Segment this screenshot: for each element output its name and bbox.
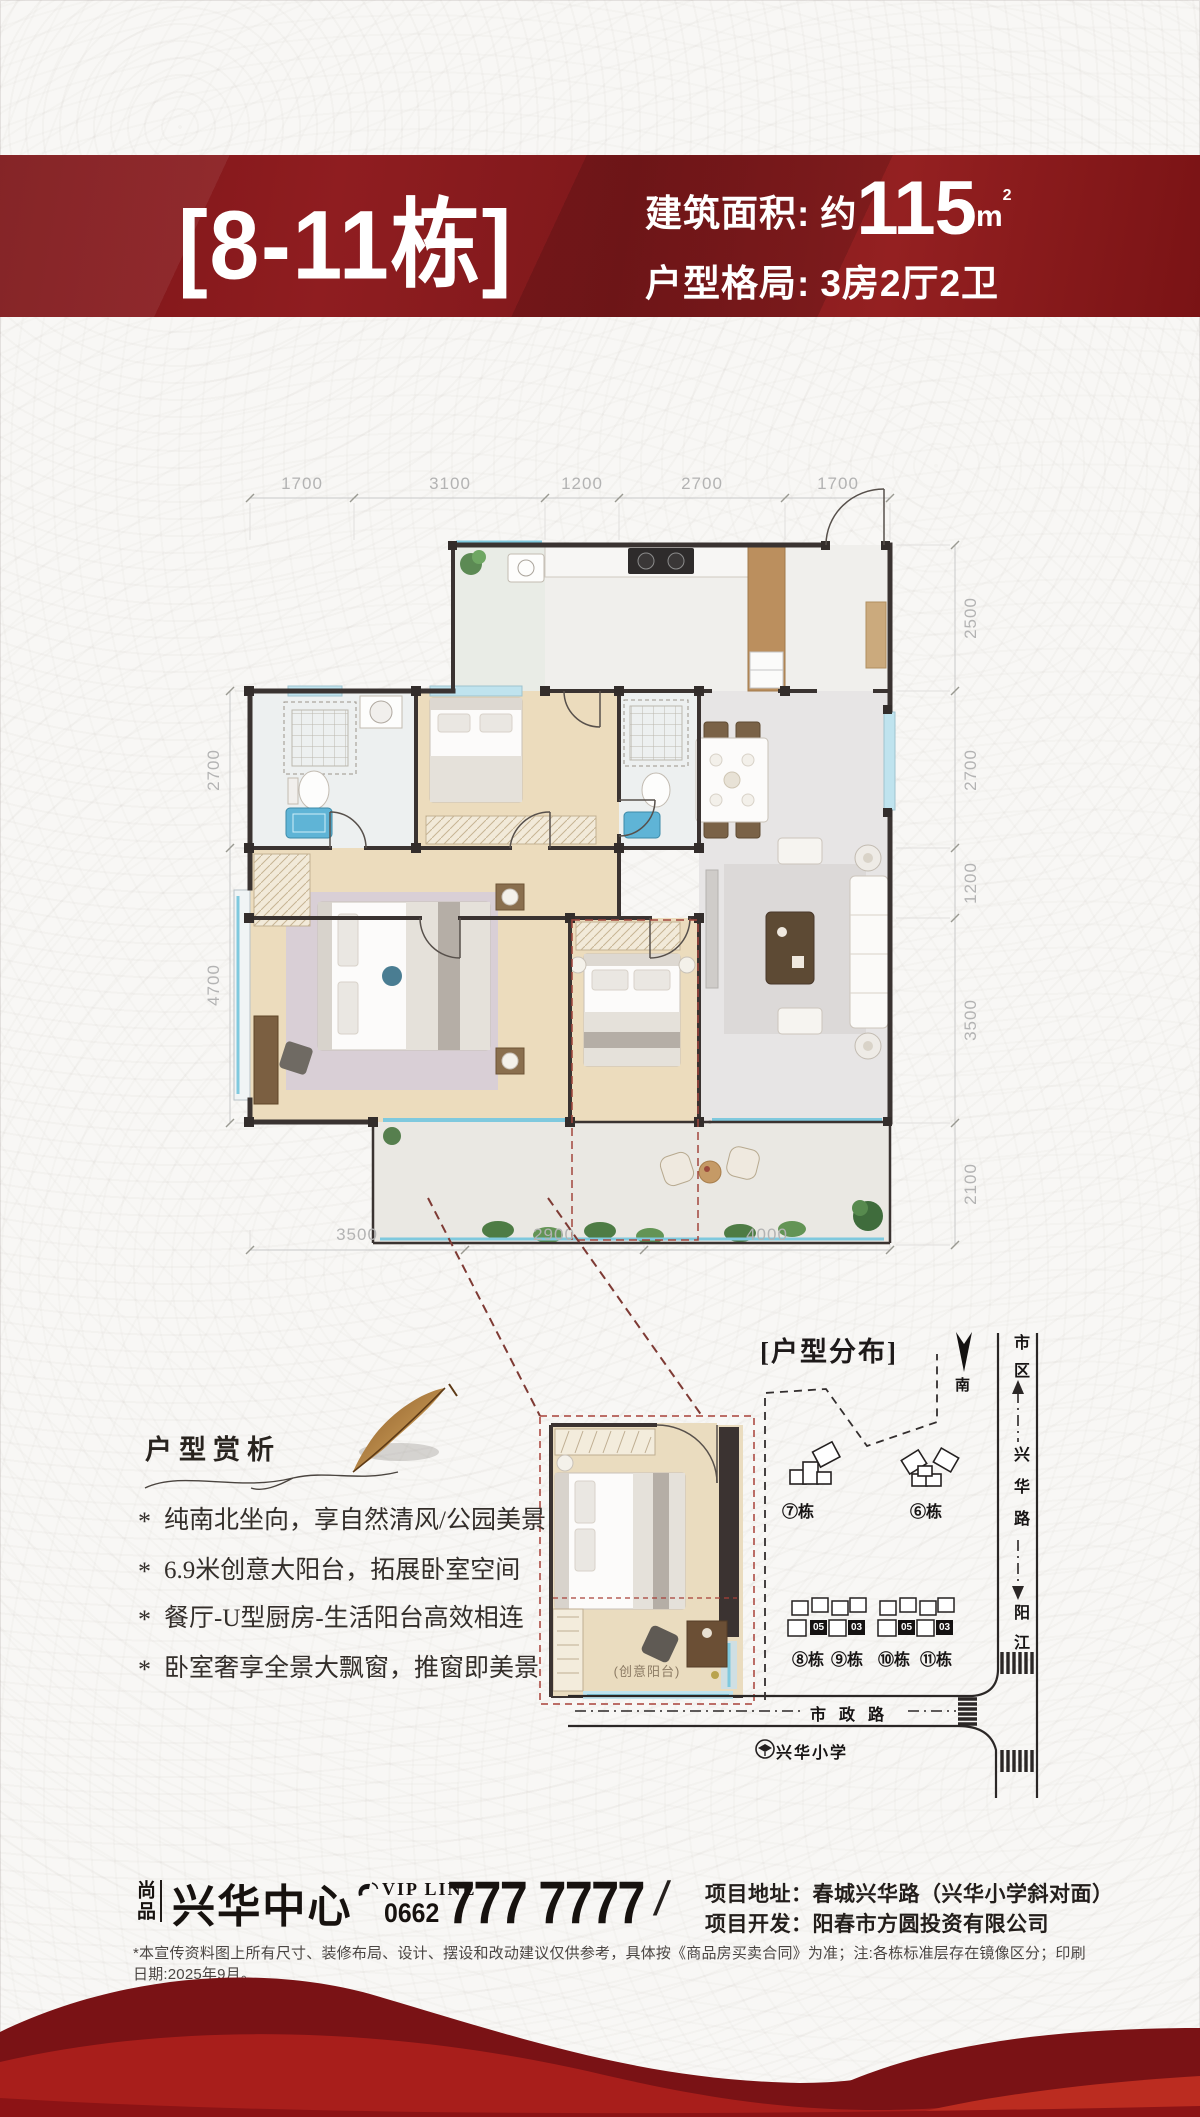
phone-area-code: 0662 bbox=[384, 1898, 439, 1929]
analysis-section: 户型赏析 *纯南北坐向，享自然清风/公园美景 *6.9米创意大阳台，拓展卧室空间… bbox=[133, 1382, 573, 1702]
dim-label: 2100 bbox=[961, 1163, 981, 1205]
dim-label: 1700 bbox=[817, 474, 859, 494]
unit-tag: 03 bbox=[936, 1620, 953, 1635]
analysis-title: 户型赏析 bbox=[145, 1428, 281, 1467]
dim-label: 2900 bbox=[533, 1225, 575, 1245]
dim-label: 4000 bbox=[746, 1225, 788, 1245]
dim-label: 2500 bbox=[961, 597, 981, 639]
building-label-6: ⑥栋 bbox=[910, 1498, 942, 1522]
poster-page: [8-11栋] 建筑面积:约115m2 户型格局:3房2厅2卫 bbox=[0, 0, 1200, 2117]
unit-tag: 05 bbox=[810, 1620, 827, 1635]
building-label-8: ⑧栋 bbox=[792, 1646, 824, 1670]
area-label: 建筑面积: bbox=[645, 193, 810, 234]
brand-tag: 尚品 bbox=[133, 1880, 155, 1922]
bullet-marker: * bbox=[138, 1507, 164, 1537]
compass-south-label: 南 bbox=[955, 1374, 970, 1395]
building-label-10: ⑩栋 bbox=[878, 1646, 910, 1670]
dim-label: 2700 bbox=[204, 749, 224, 791]
layout-value: 3房2厅2卫 bbox=[820, 263, 999, 304]
building-label-11: ⑪栋 bbox=[920, 1646, 952, 1670]
developer-value: 阳春市方圆投资有限公司 bbox=[813, 1913, 1050, 1936]
bullet-marker: * bbox=[138, 1655, 164, 1685]
header-banner: [8-11栋] 建筑面积:约115m2 户型格局:3房2厅2卫 bbox=[0, 155, 1200, 317]
road-label-city: 市区 bbox=[1007, 1334, 1031, 1390]
unit-tag: 03 bbox=[848, 1620, 865, 1635]
address-label: 项目地址： bbox=[705, 1883, 813, 1906]
unit-tag: 05 bbox=[898, 1620, 915, 1635]
footer: 尚品 兴华中心 VIP LINE 0662 777 7777 / 项目地址：春城… bbox=[0, 1868, 1200, 1988]
bullet-text: 卧室奢享全景大飘窗，推窗即美景 bbox=[164, 1655, 539, 1682]
area-approx: 约 bbox=[820, 193, 856, 234]
road-label-xinghua: 兴华路 bbox=[1007, 1446, 1031, 1542]
road-label-shizheng: 市政路 bbox=[810, 1701, 897, 1725]
area-value: 115 bbox=[856, 166, 976, 251]
sitemap-drawing bbox=[560, 1318, 1140, 1798]
dim-label: 1200 bbox=[561, 474, 603, 494]
address-value: 春城兴华路（兴华小学斜对面） bbox=[813, 1883, 1114, 1906]
area-line: 建筑面积:约115m2 bbox=[645, 171, 1012, 247]
school-label: 兴华小学 bbox=[776, 1739, 848, 1763]
area-unit: m bbox=[976, 200, 1003, 233]
bullet-text: 6.9米创意大阳台，拓展卧室空间 bbox=[164, 1557, 520, 1584]
layout-line: 户型格局:3房2厅2卫 bbox=[645, 253, 999, 307]
footer-divider-slash: / bbox=[651, 1872, 672, 1927]
bullet-text: 纯南北坐向，享自然清风/公园美景 bbox=[164, 1507, 546, 1534]
floorplan: 1700 3100 1200 2700 1700 2500 2700 1200 … bbox=[180, 460, 1040, 1270]
building-label-9: ⑨栋 bbox=[831, 1646, 863, 1670]
flourish-underline bbox=[143, 1466, 403, 1496]
area-unit-sup: 2 bbox=[1003, 187, 1012, 204]
project-address-line: 项目地址：春城兴华路（兴华小学斜对面） bbox=[705, 1878, 1114, 1908]
layout-label: 户型格局: bbox=[645, 263, 810, 304]
dim-label: 1200 bbox=[961, 862, 981, 904]
brand-name: 兴华中心 bbox=[172, 1870, 352, 1935]
developer-label: 项目开发： bbox=[705, 1913, 813, 1936]
bullet-marker: * bbox=[138, 1605, 164, 1635]
disclaimer-text: *本宣传资料图上所有尺寸、装修布局、设计、摆设和改动建议仅供参考，具体按《商品房… bbox=[133, 1942, 1093, 1984]
bullet-text: 餐厅-U型厨房-生活阳台高效相连 bbox=[164, 1605, 524, 1632]
phone-icon bbox=[355, 1880, 379, 1904]
building-label-7: ⑦栋 bbox=[782, 1498, 814, 1522]
phone-number: 777 7777 bbox=[447, 1868, 644, 1937]
dim-label: 4700 bbox=[204, 964, 224, 1006]
analysis-bullet: *6.9米创意大阳台，拓展卧室空间 bbox=[138, 1550, 578, 1587]
dim-label: 2700 bbox=[961, 749, 981, 791]
dim-label: 3100 bbox=[429, 474, 471, 494]
dim-label: 3500 bbox=[336, 1225, 378, 1245]
dim-label: 2700 bbox=[681, 474, 723, 494]
project-developer-line: 项目开发：阳春市方圆投资有限公司 bbox=[705, 1908, 1049, 1938]
building-title: [8-11栋] bbox=[178, 166, 513, 307]
dim-label: 1700 bbox=[281, 474, 323, 494]
dim-label: 3500 bbox=[961, 999, 981, 1041]
brand-divider bbox=[160, 1880, 162, 1922]
analysis-bullet: *餐厅-U型厨房-生活阳台高效相连 bbox=[138, 1598, 578, 1635]
road-label-yangjiang: 阳江 bbox=[1007, 1604, 1031, 1664]
distribution-section: [户型分布] 南 市区 兴华路 阳江 市政路 兴华小学 ⑦栋 ⑥栋 ⑧栋 ⑨栋 … bbox=[560, 1318, 1140, 1798]
analysis-bullet: *卧室奢享全景大飘窗，推窗即美景 bbox=[138, 1648, 578, 1685]
analysis-bullet: *纯南北坐向，享自然清风/公园美景 bbox=[138, 1500, 578, 1537]
bullet-marker: * bbox=[138, 1557, 164, 1587]
floorplan-drawing bbox=[180, 460, 1040, 1270]
distribution-title: [户型分布] bbox=[760, 1330, 898, 1369]
